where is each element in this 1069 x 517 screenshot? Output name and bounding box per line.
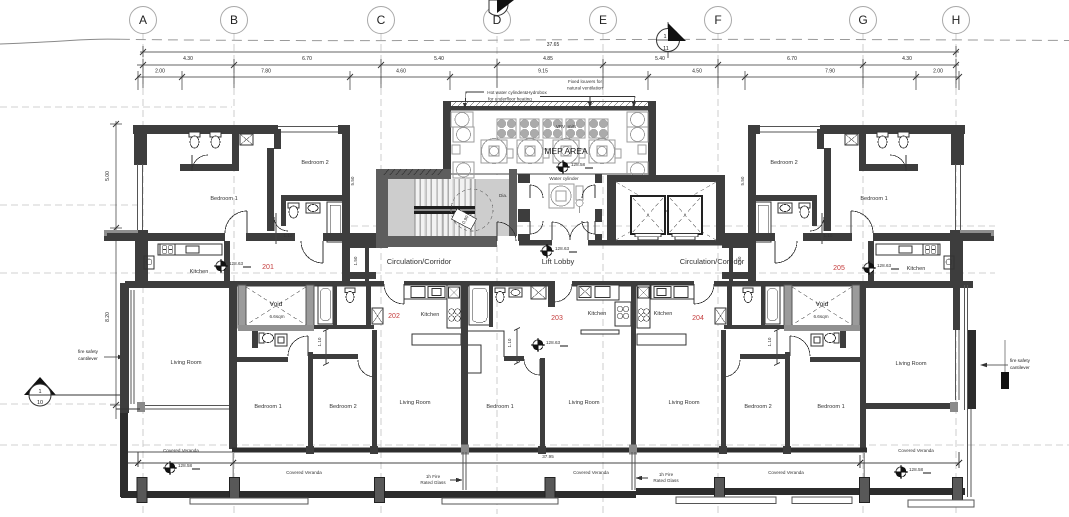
svg-text:10: 10 [37,400,43,406]
svg-text:11: 11 [663,46,669,52]
svg-text:MEP AREA: MEP AREA [544,146,588,156]
svg-text:Living Room: Living Room [399,400,430,406]
svg-text:6.70: 6.70 [787,56,797,62]
svg-text:1.10: 1.10 [824,233,833,238]
svg-text:203: 203 [551,315,563,322]
svg-text:Bedroom 1: Bedroom 1 [486,404,513,410]
svg-text:Circulation/Corridor: Circulation/Corridor [387,257,452,266]
svg-text:Dia.: Dia. [499,193,507,198]
svg-text:Water cylinder: Water cylinder [549,176,579,181]
svg-text:4.50: 4.50 [692,69,702,75]
svg-text:Bedroom 2: Bedroom 2 [770,160,797,166]
svg-text:VRV units: VRV units [556,124,577,129]
svg-text:5.40: 5.40 [655,56,665,62]
svg-text:128.58: 128.58 [178,463,192,468]
svg-text:Hot water cylinder&Hydrobox: Hot water cylinder&Hydrobox [487,90,547,95]
svg-text:Void: Void [816,301,829,308]
svg-text:cantilever: cantilever [78,356,98,361]
svg-text:128.63: 128.63 [229,261,243,266]
svg-text:Bedroom 1: Bedroom 1 [254,404,281,410]
svg-text:1.10: 1.10 [507,338,512,347]
svg-text:Covered Veranda: Covered Veranda [768,470,804,475]
svg-text:4.85: 4.85 [543,56,553,62]
svg-text:5.50: 5.50 [740,176,745,185]
svg-text:Rated Glass: Rated Glass [653,478,679,483]
svg-text:fire safety: fire safety [1010,358,1031,363]
svg-text:Fixed louvers for: Fixed louvers for [568,79,602,84]
svg-text:7.80: 7.80 [261,69,271,75]
svg-text:Rated Glass: Rated Glass [420,480,446,485]
svg-text:1: 1 [663,34,666,40]
svg-text:Kitchen: Kitchen [907,266,926,272]
svg-text:F: F [714,13,721,27]
svg-text:Bedroom 1: Bedroom 1 [210,196,237,202]
svg-text:C: C [377,13,386,27]
svg-text:128.63: 128.63 [546,340,560,345]
svg-text:Kitchen: Kitchen [421,312,440,318]
svg-text:9.15: 9.15 [538,69,548,75]
svg-text:Covered Veranda: Covered Veranda [898,448,934,453]
svg-text:B: B [230,13,238,27]
svg-text:cantilever: cantilever [1010,365,1030,370]
svg-text:Bedroom 2: Bedroom 2 [301,160,328,166]
svg-text:E: E [599,13,607,27]
svg-text:204: 204 [692,315,704,322]
svg-text:1h Fire: 1h Fire [659,472,674,477]
svg-text:5.40: 5.40 [434,56,444,62]
svg-text:2.00: 2.00 [155,69,165,75]
svg-text:4.30: 4.30 [902,56,912,62]
svg-text:Lift Lobby: Lift Lobby [542,257,575,266]
svg-text:5.00: 5.00 [105,171,111,181]
svg-text:1: 1 [38,389,41,395]
svg-text:4.60: 4.60 [396,69,406,75]
svg-text:2.00: 2.00 [933,69,943,75]
svg-text:Living Room: Living Room [568,400,599,406]
svg-text:202: 202 [388,313,400,320]
svg-text:6.6sqm: 6.6sqm [813,314,828,319]
svg-text:128.63: 128.63 [877,263,891,268]
svg-text:37.65: 37.65 [547,42,560,48]
svg-text:Void: Void [270,301,283,308]
svg-text:1h Fire: 1h Fire [426,474,441,479]
svg-text:1.50: 1.50 [737,256,742,265]
svg-text:128.58: 128.58 [909,467,923,472]
svg-text:Covered Veranda: Covered Veranda [163,448,199,453]
svg-text:Bedroom 1: Bedroom 1 [817,404,844,410]
svg-text:1.50: 1.50 [353,256,358,265]
svg-text:128.58: 128.58 [571,162,585,167]
svg-text:A: A [139,13,147,27]
svg-text:Bedroom 2: Bedroom 2 [329,404,356,410]
svg-text:201: 201 [262,264,274,271]
svg-text:1.10: 1.10 [284,233,293,238]
svg-text:Covered Veranda: Covered Veranda [286,470,322,475]
svg-text:4.30: 4.30 [183,56,193,62]
svg-text:7.90: 7.90 [825,69,835,75]
svg-text:205: 205 [833,265,845,272]
svg-text:128.63: 128.63 [555,246,569,251]
svg-text:Circulation/Corridor: Circulation/Corridor [680,257,745,266]
svg-text:Covered Veranda: Covered Veranda [573,470,609,475]
svg-text:Kitchen: Kitchen [588,311,607,317]
svg-text:H: H [952,13,961,27]
svg-text:6.70: 6.70 [302,56,312,62]
svg-text:5.50: 5.50 [350,176,355,185]
svg-text:Bedroom 2: Bedroom 2 [744,404,771,410]
svg-text:for underfloor heating: for underfloor heating [488,97,532,102]
svg-text:Kitchen: Kitchen [654,311,673,317]
svg-text:8.20: 8.20 [105,312,111,322]
svg-text:Kitchen: Kitchen [190,269,209,275]
svg-text:1.10: 1.10 [317,337,322,346]
svg-text:Living Room: Living Room [668,400,699,406]
svg-text:Living Room: Living Room [895,361,926,367]
svg-text:G: G [858,13,867,27]
svg-text:Bedroom 1: Bedroom 1 [860,196,887,202]
svg-text:1.10: 1.10 [767,337,772,346]
svg-text:6.6sqm: 6.6sqm [269,314,284,319]
svg-text:natural ventilation: natural ventilation [567,86,603,91]
svg-text:Living Room: Living Room [170,360,201,366]
svg-text:fire safety: fire safety [78,349,99,354]
svg-text:37.95: 37.95 [542,454,554,459]
